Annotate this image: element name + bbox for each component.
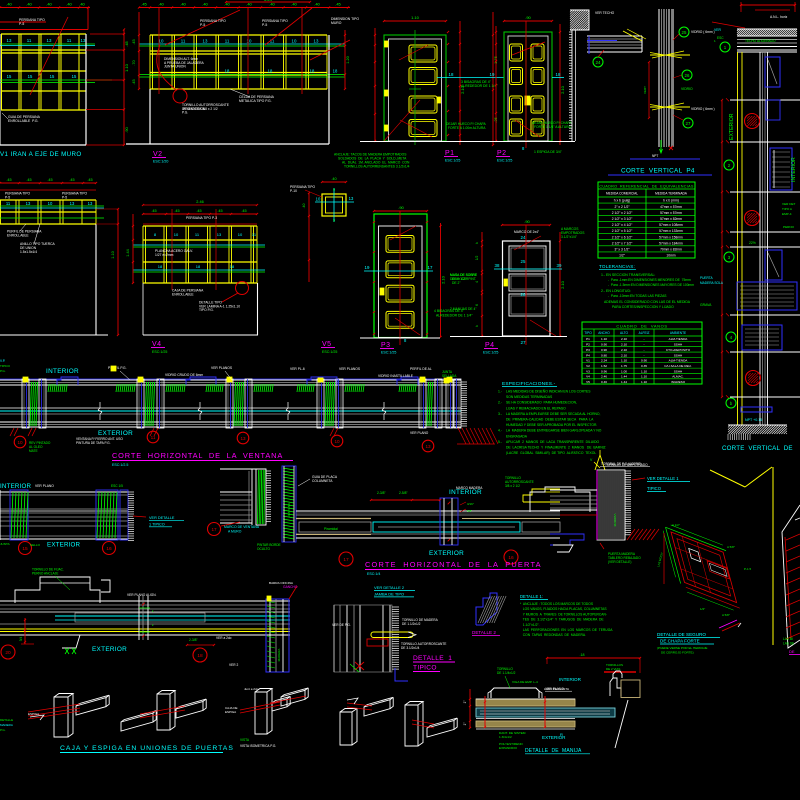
svg-text:VER: VER [714, 28, 722, 32]
svg-text:17: 17 [343, 557, 349, 563]
svg-text:15: 15 [7, 74, 12, 79]
svg-text:1.44: 1.44 [621, 375, 627, 379]
svg-text:3.1/2"x1/4": 3.1/2"x1/4" [561, 235, 578, 239]
svg-text:FORTE 1 1/4" A ALTURA: FORTE 1 1/4" A ALTURA [534, 125, 572, 129]
svg-text:TORNILLO DE EMPOTRADO: TORNILLO DE EMPOTRADO [605, 463, 648, 467]
svg-text:.18: .18 [580, 653, 585, 657]
svg-text:2.-: 2.- [498, 401, 502, 405]
svg-text:.45: .45 [217, 209, 222, 213]
svg-text:13: 13 [7, 38, 12, 43]
svg-text:ALFEIZ: ALFEIZ [639, 331, 650, 335]
svg-text:V1: V1 [586, 359, 590, 363]
svg-text:0.46: 0.46 [601, 380, 607, 384]
svg-text:ESC:1/25: ESC:1/25 [497, 159, 512, 163]
svg-text:ADEMAS EL CONSIDERADO CON LAS: ADEMAS EL CONSIDERADO CON LAS DE EL MEDI… [604, 300, 691, 304]
svg-text:13: 13 [26, 201, 31, 206]
svg-text:11: 11 [181, 39, 186, 44]
svg-text:-: - [643, 348, 644, 352]
svg-text:(PUEDE VERSE POR EL HERRAJE: (PUEDE VERSE POR EL HERRAJE [657, 646, 707, 650]
svg-text:VENTANA: VENTANA [287, 503, 291, 517]
svg-text:PERSIANA TIPO P-3: PERSIANA TIPO P-3 [186, 216, 217, 220]
svg-text:ALREDEDOR DE 1 1/4": ALREDEDOR DE 1 1/4" [436, 314, 473, 318]
svg-text:DE PRIMERA-CALIDAD DEBE ESTA: DE PRIMERA-CALIDAD DEBE ESTAR SECA PARA … [506, 418, 594, 422]
svg-text:CORTE VERTICAL P4: CORTE VERTICAL P4 [621, 168, 695, 175]
svg-text:18: 18 [268, 69, 273, 74]
svg-text:CORTE HORIZONTAL DE LA PUE: CORTE HORIZONTAL DE LA PUERTA [365, 560, 542, 569]
svg-text:.45: .45 [335, 2, 341, 7]
svg-text:LA MADERA DEBE ENTREGARSE BIE: LA MADERA DEBE ENTREGARSE BIEN GARLOPEAD… [506, 429, 602, 433]
svg-text:EXPANDIDO: EXPANDIDO [499, 746, 518, 750]
svg-text:VER PLANOS: VER PLANOS [211, 366, 233, 370]
svg-text:ESC:1/20: ESC:1/20 [153, 160, 168, 164]
svg-text:2 1/2" x 3 1/2": 2 1/2" x 3 1/2" [612, 217, 633, 221]
svg-text:17: 17 [211, 527, 217, 532]
svg-text:EXTERIOR: EXTERIOR [729, 113, 735, 140]
svg-text:.40: .40 [302, 204, 306, 209]
svg-text:18: 18 [333, 69, 338, 74]
svg-text:P-10: P-10 [290, 189, 297, 193]
svg-text:JUNTA: JUNTA [0, 542, 11, 546]
svg-text:VER DETALLE: VER DETALLE [149, 516, 175, 520]
svg-text:2 1/2" x 5 1/2": 2 1/2" x 5 1/2" [612, 229, 633, 233]
svg-text:BARRA OFICINA: BARRA OFICINA [269, 581, 294, 585]
svg-text:2.10: 2.10 [560, 85, 565, 94]
svg-text:2-3/8": 2-3/8" [377, 491, 387, 495]
svg-text:20: 20 [5, 650, 11, 656]
svg-text:P.G.: P.G. [0, 369, 6, 373]
svg-text:PERNO: PERNO [783, 225, 795, 229]
svg-text:47mm x 57mm: 47mm x 57mm [660, 205, 682, 209]
svg-text:DETALLE 1: DETALLE 1 [413, 655, 452, 662]
svg-text:PARA CORTES/INSPECCION Y LIJAD: PARA CORTES/INSPECCION Y LIJADO [612, 305, 674, 309]
svg-text:6: 6 [475, 304, 479, 306]
svg-text:P3: P3 [586, 348, 590, 352]
svg-text:18: 18 [230, 264, 235, 269]
svg-text:3" x 3 1/2": 3" x 3 1/2" [615, 248, 631, 252]
svg-text:1.10: 1.10 [124, 63, 129, 72]
svg-text:2.10: 2.10 [621, 348, 627, 352]
svg-text:A 5/8": A 5/8" [722, 613, 730, 617]
svg-text:.45: .45 [87, 178, 92, 182]
svg-text:26: 26 [521, 292, 526, 297]
svg-text:DE CHAPA FORTE: DE CHAPA FORTE [660, 639, 700, 644]
svg-text:V2: V2 [586, 364, 590, 368]
svg-text:19: 19 [490, 72, 495, 77]
svg-text:1.75: 1.75 [493, 55, 498, 64]
svg-text:18: 18 [449, 72, 454, 77]
svg-text:V1 IRAN A EJE DE MURO: V1 IRAN A EJE DE MURO [0, 151, 82, 158]
svg-text:METALICA TIPO P.G.: METALICA TIPO P.G. [239, 99, 272, 103]
svg-text:10: 10 [17, 440, 23, 445]
svg-text:VER PLANO: VER PLANO [35, 484, 54, 488]
svg-text:ESPIGA: ESPIGA [225, 710, 236, 714]
svg-text:1.00: 1.00 [621, 369, 627, 373]
svg-text:VER 2: VER 2 [229, 663, 238, 667]
svg-text:LAS BI: LAS BI [783, 637, 793, 641]
svg-text:TIPICO: TIPICO [0, 364, 11, 368]
svg-text:10: 10 [174, 232, 179, 237]
svg-text:1/2": 1/2" [700, 607, 705, 611]
svg-text:VER PLANO: VER PLANO [410, 431, 429, 435]
svg-text:VIDRIO CRUDO DE 6mm: VIDRIO CRUDO DE 6mm [165, 373, 203, 377]
svg-text:DETALLE 2: DETALLE 2 [472, 630, 496, 635]
svg-text:TIPO: TIPO [584, 331, 592, 335]
svg-text:V5: V5 [586, 380, 590, 384]
svg-text:10mm: 10mm [666, 254, 675, 258]
svg-text:ESC:1/2.5: ESC:1/2.5 [112, 463, 128, 467]
svg-text:.45: .45 [124, 40, 129, 46]
svg-text:.40: .40 [6, 2, 12, 7]
svg-text:2.10: 2.10 [621, 353, 627, 357]
svg-text:57mm x 108mm: 57mm x 108mm [659, 223, 683, 227]
svg-text:1.10: 1.10 [641, 380, 647, 384]
svg-text:- Para -10mm:EN TODAS LAS PIE: - Para -10mm:EN TODAS LAS PIEZAS [608, 294, 667, 298]
svg-text:LA MADERA A EMPLEARSE DEBE SER: LA MADERA A EMPLEARSE DEBE SER SECADA AL… [506, 412, 601, 416]
svg-text:ESC:1/25: ESC:1/25 [381, 351, 396, 355]
svg-text:FORTE A 1.00m ALTURA: FORTE A 1.00m ALTURA [448, 126, 486, 130]
svg-text:2.46: 2.46 [196, 200, 203, 204]
svg-text:24: 24 [521, 235, 526, 240]
svg-text:13: 13 [70, 201, 75, 206]
svg-text:A 1/2": A 1/2" [672, 523, 680, 527]
svg-text:CAJA Y ESPIGA EN UNIONES DE PU: CAJA Y ESPIGA EN UNIONES DE PUERTAS [60, 745, 234, 752]
svg-text:VIGA DE EMP. L-4: VIGA DE EMP. L-4 [512, 680, 538, 684]
svg-text:2.46: 2.46 [601, 375, 607, 379]
svg-text:13: 13 [425, 444, 431, 449]
svg-text:P1: P1 [445, 150, 455, 157]
svg-text:.45: .45 [241, 209, 246, 213]
svg-text:25: 25 [521, 259, 526, 264]
svg-text:INTERIOR: INTERIOR [46, 368, 79, 375]
svg-text:P.G.: P.G. [182, 111, 188, 115]
svg-text:13: 13 [88, 201, 93, 206]
svg-text:0.80: 0.80 [601, 353, 607, 357]
svg-text:18: 18 [556, 72, 561, 77]
svg-text:.40: .40 [180, 2, 186, 7]
svg-text:OCULTO: OCULTO [257, 547, 271, 551]
svg-text:HUMEDAD Y DEBE SER APROBADA PO: HUMEDAD Y DEBE SER APROBADA POR EL INSPE… [506, 423, 597, 427]
svg-text:57mm x 57mm: 57mm x 57mm [660, 211, 682, 215]
svg-text:18: 18 [197, 653, 203, 659]
svg-text:13: 13 [240, 436, 246, 441]
svg-text:2.- EN LONGITUD:: 2.- EN LONGITUD: [601, 289, 631, 293]
svg-text:CORTE HORIZONTAL DE LA VEN: CORTE HORIZONTAL DE LA VENTANA [112, 451, 283, 460]
svg-text:.90: .90 [525, 15, 531, 20]
svg-text:1.10: 1.10 [641, 375, 647, 379]
svg-text:1.10: 1.10 [411, 15, 420, 20]
svg-text:.45: .45 [47, 178, 52, 182]
svg-text:NPT: NPT [652, 154, 658, 158]
svg-text:MEDIDA COMERCIAL: MEDIDA COMERCIAL [606, 192, 638, 196]
svg-text:LIJAS Y REMACHADO EN EL REPASO: LIJAS Y REMACHADO EN EL REPASO [506, 406, 566, 410]
svg-text:.45: .45 [6, 178, 11, 182]
svg-text:5.-: 5.- [498, 440, 502, 444]
svg-text:(LACRE GLOBAL SIMILAR) DE T: (LACRE GLOBAL SIMILAR) DE TIPO ALIFATICO… [506, 451, 596, 455]
svg-text:11: 11 [67, 38, 72, 43]
svg-text:57mm x 184mm: 57mm x 184mm [659, 241, 683, 245]
svg-text:V2: V2 [153, 151, 163, 158]
svg-text:4: 4 [475, 281, 479, 283]
svg-text:ESC:1/25: ESC:1/25 [445, 159, 460, 163]
svg-text:15: 15 [50, 74, 55, 79]
svg-text:0.90: 0.90 [641, 359, 647, 363]
svg-text:PINTURA DE TAPA P.G.: PINTURA DE TAPA P.G. [76, 441, 111, 445]
svg-text:P-5: P-5 [262, 23, 267, 27]
svg-text:V5: V5 [322, 341, 332, 348]
svg-text:9: 9 [333, 219, 335, 223]
svg-text:MADERA: MADERA [277, 649, 281, 662]
svg-text:GANCHO: GANCHO [283, 585, 298, 589]
svg-text:h x b (mm): h x b (mm) [663, 199, 679, 203]
svg-text:P1: P1 [586, 337, 590, 341]
svg-text:LAS PERFORACIONES EN LOS M: LAS PERFORACIONES EN LOS MARCOS DE TERUG… [520, 628, 613, 632]
svg-text:ESC: ESC [717, 36, 724, 40]
svg-text:1 TIPICO: 1 TIPICO [149, 523, 165, 527]
svg-text:DETALLE 1:: DETALLE 1: [520, 594, 543, 599]
svg-text:.45: .45 [196, 209, 201, 213]
svg-text:25: 25 [682, 30, 687, 35]
svg-text:1/2: 1/2 [475, 256, 479, 261]
svg-text:1.10: 1.10 [111, 251, 115, 258]
svg-text:P-5: P-5 [62, 195, 67, 199]
svg-text:10: 10 [247, 39, 252, 44]
svg-text:1.1/2"x1/2".: 1.1/2"x1/2". [520, 623, 540, 627]
svg-text:10: 10 [238, 232, 243, 237]
svg-text:SELLADA: SELLADA [442, 374, 457, 378]
svg-text:A MURO: A MURO [228, 530, 242, 534]
svg-text:.45: .45 [151, 209, 156, 213]
svg-text:V3: V3 [586, 369, 590, 373]
svg-text:15: 15 [28, 74, 33, 79]
svg-text:.40: .40 [331, 177, 336, 181]
svg-text:LOS VANOS, FIJADOS HACIA PLACA: LOS VANOS, FIJADOS HACIA PLACAS, COLUMNE… [520, 607, 607, 611]
svg-text:1 ESPIGA DE 3/4": 1 ESPIGA DE 3/4" [534, 150, 563, 154]
svg-text:ALTO: ALTO [620, 331, 629, 335]
svg-text:DETALLE DE MANIJA: DETALLE DE MANIJA [525, 748, 582, 754]
svg-text:LADO DE L-ASTA: LADO DE L-ASTA [544, 687, 570, 691]
svg-text:NPT +0.15: NPT +0.15 [745, 418, 762, 422]
svg-text:15: 15 [22, 546, 28, 552]
svg-text:.40: .40 [79, 2, 85, 7]
svg-text:13: 13 [203, 39, 208, 44]
svg-text:TIPO P.G.: TIPO P.G. [199, 308, 214, 312]
svg-text:11: 11 [225, 39, 230, 44]
svg-text:.40: .40 [158, 2, 164, 7]
svg-text:CON TAPAS REDONDAS DE MADE: CON TAPAS REDONDAS DE MADERA. [520, 633, 586, 637]
svg-text:VER DETALLE 1: VER DETALLE 1 [647, 476, 679, 481]
svg-text:DE 2": DE 2" [452, 281, 461, 285]
svg-text:10: 10 [334, 439, 340, 444]
svg-text:VER PLANOS: VER PLANOS [339, 367, 361, 371]
svg-text:ENGRASADA: ENGRASADA [506, 434, 528, 438]
svg-text:3/16": 3/16" [467, 502, 474, 506]
svg-text:ENROLLABLE: ENROLLABLE [7, 233, 29, 237]
svg-text:.90: .90 [524, 219, 530, 224]
svg-text:.35: .35 [493, 116, 498, 122]
svg-text:LAS SE: LAS SE [783, 642, 794, 646]
svg-text:2-5/8": 2-5/8" [399, 491, 409, 495]
svg-text:2.10: 2.10 [621, 343, 627, 347]
svg-text:.90: .90 [124, 126, 129, 132]
svg-text:* ANCLAJE : TODOS LOS MARCOS: * ANCLAJE : TODOS LOS MARCOS DE TODOS [520, 602, 594, 606]
svg-text:1.10: 1.10 [601, 337, 607, 341]
svg-text:18: 18 [225, 69, 230, 74]
svg-text:VIDRIO INASTILLABLE: VIDRIO INASTILLABLE [378, 374, 414, 378]
svg-text:1.75: 1.75 [621, 364, 627, 368]
svg-text:.40: .40 [66, 2, 72, 7]
svg-text:JAMBA DE TIPO: JAMBA DE TIPO [374, 592, 404, 597]
svg-text:13: 13 [47, 38, 52, 43]
svg-text:1.3/4x1/2: 1.3/4x1/2 [499, 735, 512, 739]
svg-text:4.-: 4.- [498, 429, 502, 433]
svg-text:13: 13 [349, 196, 354, 201]
svg-text:V4: V4 [152, 341, 162, 348]
svg-text:1.44: 1.44 [126, 249, 130, 256]
svg-text:18: 18 [196, 264, 201, 269]
svg-text:- Para -1mm:EN DIMENSIONES ME: - Para -1mm:EN DIMENSIONES MENORES DE 75… [608, 278, 691, 282]
svg-text:JUNTA UNION: JUNTA UNION [164, 65, 186, 69]
svg-text:0.96: 0.96 [601, 369, 607, 373]
svg-text:9: 9 [333, 188, 335, 192]
svg-text:.40: .40 [314, 2, 320, 7]
svg-text:ALMAC.: ALMAC. [672, 375, 684, 379]
svg-text:ALREDEDOR DE 1 1/4": ALREDEDOR DE 1 1/4" [461, 84, 498, 88]
svg-text:DE 1.1/4x1/2: DE 1.1/4x1/2 [497, 671, 516, 675]
svg-text:-: - [643, 343, 644, 347]
svg-text:ENROLLABLE: ENROLLABLE [172, 292, 194, 296]
svg-text:VIDRIO: VIDRIO [681, 87, 693, 91]
svg-text:ESC:1/25: ESC:1/25 [483, 351, 498, 355]
svg-text:ESC:1/25: ESC:1/25 [152, 350, 167, 354]
svg-text:.90: .90 [398, 205, 404, 210]
svg-text:P2: P2 [497, 150, 507, 157]
svg-text:13: 13 [314, 39, 319, 44]
svg-text:70mm x 82mm: 70mm x 82mm [660, 248, 682, 252]
svg-text:.40: .40 [46, 2, 52, 7]
svg-text:MARCO DE VENTANA: MARCO DE VENTANA [224, 525, 260, 529]
svg-text:P4: P4 [586, 353, 590, 357]
svg-text:18: 18 [310, 69, 315, 74]
svg-text:1.10: 1.10 [641, 369, 647, 373]
svg-text:EMP-4: EMP-4 [782, 212, 792, 216]
svg-text:.40: .40 [26, 2, 32, 7]
svg-text:VER a 2do: VER a 2do [216, 636, 232, 640]
svg-text:2.10: 2.10 [560, 280, 565, 289]
svg-text:R: R [560, 732, 563, 737]
svg-text:2.24: 2.24 [601, 359, 607, 363]
svg-text:VER DE P.G.: VER DE P.G. [332, 623, 351, 627]
svg-text:EXTERIOR: EXTERIOR [92, 646, 127, 653]
svg-text:V.P.: V.P. [0, 359, 5, 363]
svg-text:DE: DE [789, 649, 795, 654]
svg-text:VER PL-6: VER PL-6 [290, 367, 305, 371]
svg-text:13: 13 [217, 232, 222, 237]
svg-text:CUADRO DE VANOS: CUADRO DE VANOS [616, 324, 667, 329]
svg-text:CORTE VERTICAL DE: CORTE VERTICAL DE [722, 445, 793, 452]
svg-text:VER TECHO: VER TECHO [595, 11, 615, 15]
svg-text:27: 27 [686, 121, 691, 126]
svg-text:P-5: P-5 [5, 195, 10, 199]
svg-text:VER DET: VER DET [782, 202, 796, 206]
svg-text:P.G.: P.G. [0, 728, 6, 732]
svg-text:MATE: MATE [29, 449, 38, 453]
svg-text:1.20: 1.20 [346, 56, 350, 63]
svg-text:INTERIOR: INTERIOR [791, 157, 797, 182]
svg-text:13: 13 [81, 38, 86, 43]
svg-text:2-3/8": 2-3/8" [189, 638, 199, 642]
svg-text:DE 2 VIAS: DE 2 VIAS [606, 667, 620, 671]
svg-text:P-1.5: P-1.5 [744, 567, 752, 571]
svg-text:EXTERIOR: EXTERIOR [47, 542, 81, 549]
svg-text:ENROLLABLE P.G.: ENROLLABLE P.G. [8, 119, 39, 123]
svg-text:CUADRO REFERENCIAL DE EQUIV: CUADRO REFERENCIAL DE EQUIVALENCIAS [599, 185, 694, 189]
svg-text:DE LACRISA TECHO Y FINALMEN: DE LACRISA TECHO Y FINALMENTE 2 MANOS DE… [506, 446, 606, 450]
svg-text:19: 19 [365, 265, 370, 270]
svg-text:DE CERROJO FORTE): DE CERROJO FORTE) [661, 651, 694, 655]
svg-text:PERFIL DE AL: PERFIL DE AL [410, 367, 432, 371]
svg-text:.45: .45 [69, 178, 74, 182]
svg-text:MADERA: MADERA [613, 514, 617, 527]
svg-text:10: 10 [48, 201, 53, 206]
svg-text:VER PLANO ALIGN.: VER PLANO ALIGN. [127, 593, 157, 597]
svg-text:EXTERIOR: EXTERIOR [429, 550, 464, 557]
svg-text:A.N.L. horiz: A.N.L. horiz [770, 15, 788, 19]
svg-text:ALM-TIENDA: ALM-TIENDA [669, 337, 689, 341]
svg-text:SSHH: SSHH [674, 369, 683, 373]
svg-text:SELLO: SELLO [30, 543, 41, 547]
svg-text:39: 39 [557, 263, 562, 268]
svg-text:3/4: 3/4 [19, 637, 23, 642]
svg-text:PROYECCION: PROYECCION [183, 107, 206, 111]
svg-text:2 1/2" x 6 1/2": 2 1/2" x 6 1/2" [612, 235, 633, 239]
svg-text:10: 10 [292, 39, 297, 44]
svg-text:10: 10 [316, 197, 321, 202]
svg-text:0.90: 0.90 [601, 348, 607, 352]
svg-text:.45: .45 [174, 209, 179, 213]
svg-text:V4: V4 [586, 375, 590, 379]
svg-text:SSHH: SSHH [674, 353, 683, 357]
svg-text:TIPICO: TIPICO [647, 486, 662, 491]
svg-text:SSHH: SSHH [674, 343, 683, 347]
svg-text:17: 17 [428, 265, 433, 270]
svg-text:P4: P4 [485, 342, 495, 349]
svg-text:-: - [643, 337, 644, 341]
svg-text:.45: .45 [26, 178, 31, 182]
svg-text:VISTA: VISTA [240, 738, 250, 742]
svg-text:GRAVA: GRAVA [700, 303, 712, 307]
svg-text:ALM-TIENDA: ALM-TIENDA [669, 359, 689, 363]
svg-text:ESC:1/4: ESC:1/4 [367, 572, 380, 576]
svg-text:18: 18 [158, 264, 163, 269]
svg-text:SE HA CONSIDERADO PARA HUMEDE: SE HA CONSIDERADO PARA HUMEDECION, [506, 401, 577, 405]
svg-text:TIPO A: TIPO A [782, 207, 793, 211]
svg-text:C/U-SALA DE REU.: C/U-SALA DE REU. [664, 364, 692, 368]
svg-text:1/2": 1/2" [619, 254, 626, 258]
svg-text:0.35: 0.35 [641, 364, 647, 368]
svg-text:1.52: 1.52 [601, 364, 607, 368]
svg-text:DE 1.1/2x1/2: DE 1.1/2x1/2 [402, 622, 421, 626]
svg-text:.45: .45 [141, 2, 147, 7]
svg-text:LAS MEDIDAS DE DISEÑO INDICAN: LAS MEDIDAS DE DISEÑO INDICAN EN LOS COR… [506, 389, 591, 394]
svg-text:h x b (pulg): h x b (pulg) [614, 199, 631, 203]
svg-text:0.90: 0.90 [601, 343, 607, 347]
svg-text:TES DE 3.1/2"x1/4" Y TARUG: TES DE 3.1/2"x1/4" Y TARUGOS DE MADERA D… [520, 618, 604, 622]
svg-text:ANCHO: ANCHO [598, 331, 610, 335]
svg-text:P3: P3 [381, 342, 391, 349]
svg-text:ESC 1/5: ESC 1/5 [111, 484, 123, 488]
svg-text:A 5/8": A 5/8" [727, 545, 735, 549]
svg-text:MADERA: MADERA [0, 723, 13, 727]
